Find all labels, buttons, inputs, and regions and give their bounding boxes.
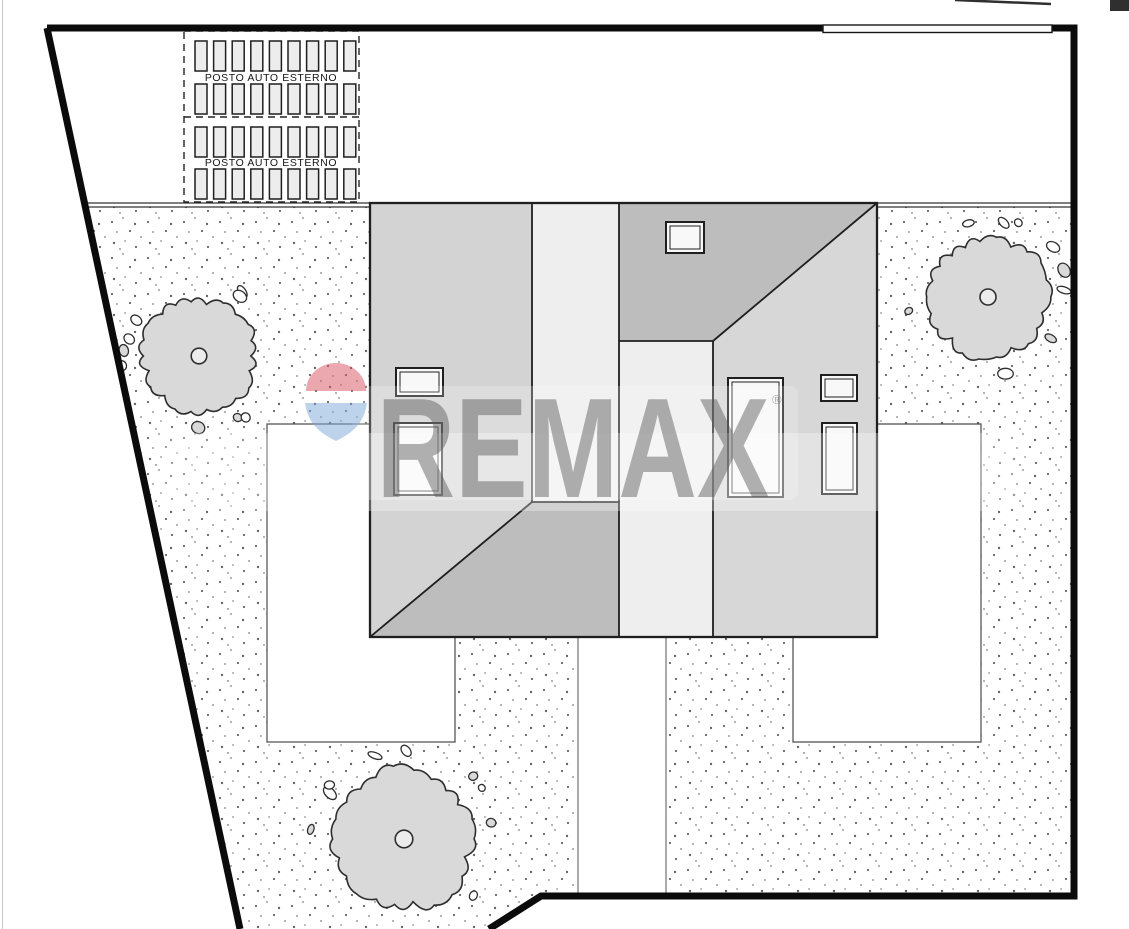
parking-stall [251, 127, 263, 157]
parking-label-2: POSTO AUTO ESTERNO [205, 157, 337, 169]
registered-mark: ® [772, 392, 782, 407]
parking-label-1: POSTO AUTO ESTERNO [205, 72, 337, 84]
parking-stall [214, 84, 226, 114]
parking-stall [251, 169, 263, 199]
parking-stall [288, 41, 300, 71]
parking-stall [307, 41, 319, 71]
parking-stall [195, 127, 207, 157]
parking-area: POSTO AUTO ESTERNO POSTO AUTO ESTERNO [184, 31, 359, 202]
parking-stall [307, 169, 319, 199]
site-plan-canvas: POSTO AUTO ESTERNO POSTO AUTO ESTERNO [0, 0, 1129, 929]
tree-tuft [998, 368, 1014, 379]
parking-stall [232, 169, 244, 199]
parking-stall [232, 127, 244, 157]
parking-stall [325, 41, 337, 71]
parking-stall [307, 84, 319, 114]
tree-trunk [980, 289, 996, 305]
parking-stall [251, 41, 263, 71]
roof-window-5 [821, 375, 857, 401]
parking-stall [214, 127, 226, 157]
parking-stall [232, 84, 244, 114]
parking-stall [325, 169, 337, 199]
parking-stall [288, 169, 300, 199]
parking-stall [344, 127, 356, 157]
parking-stall [269, 127, 281, 157]
parking-stall [307, 127, 319, 157]
parking-stall [195, 169, 207, 199]
parking-stall [344, 84, 356, 114]
parking-stall [269, 84, 281, 114]
edge-artifact-square [1110, 0, 1129, 11]
parking-stalls [195, 41, 356, 199]
parking-stall [344, 169, 356, 199]
tree-trunk [395, 830, 413, 848]
tree-trunk [191, 348, 207, 364]
boundary-gate-segment [823, 25, 1052, 33]
edge-artifact-line [955, 0, 1051, 4]
parking-stall [288, 127, 300, 157]
roof-window-3 [666, 222, 704, 253]
parking-stall [195, 41, 207, 71]
parking-stall [344, 41, 356, 71]
parking-stall [288, 84, 300, 114]
parking-stall [251, 84, 263, 114]
parking-stall [325, 127, 337, 157]
parking-stall [214, 169, 226, 199]
parking-stall [232, 41, 244, 71]
tree-tuft [324, 780, 335, 789]
parking-stall [325, 84, 337, 114]
site-plan-drawing: POSTO AUTO ESTERNO POSTO AUTO ESTERNO [0, 0, 1129, 929]
parking-stall [214, 41, 226, 71]
parking-stall [269, 169, 281, 199]
watermark-brand-text: REMAX [377, 369, 770, 528]
parking-stall [195, 84, 207, 114]
walkway [578, 637, 666, 893]
parking-stall [269, 41, 281, 71]
